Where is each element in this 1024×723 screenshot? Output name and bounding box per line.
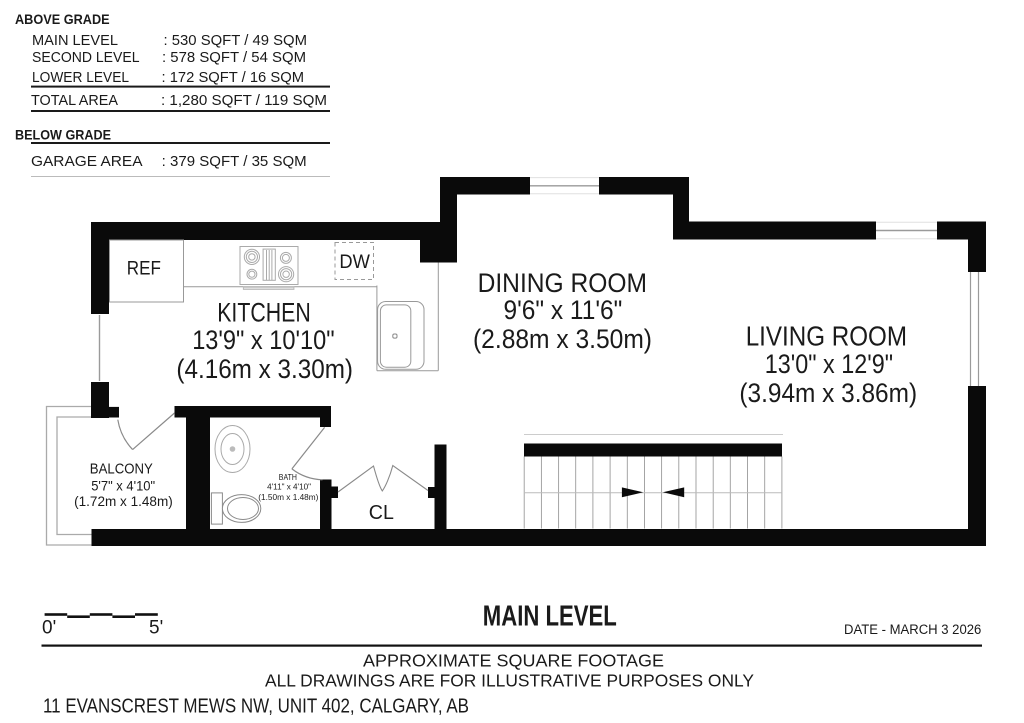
svg-text:DATE - MARCH 3 2026: DATE - MARCH 3 2026 bbox=[844, 622, 981, 637]
svg-text:13'9" x 10'10": 13'9" x 10'10" bbox=[192, 325, 334, 355]
svg-text:5'7" x 4'10": 5'7" x 4'10" bbox=[91, 479, 155, 494]
svg-text:(1.72m x 1.48m): (1.72m x 1.48m) bbox=[74, 494, 173, 509]
svg-text:CL: CL bbox=[369, 502, 394, 524]
svg-text:4'11" x 4'10": 4'11" x 4'10" bbox=[267, 483, 311, 492]
svg-text:KITCHEN: KITCHEN bbox=[217, 297, 311, 327]
svg-text:SECOND LEVEL: SECOND LEVEL bbox=[32, 50, 140, 66]
svg-text:ABOVE GRADE: ABOVE GRADE bbox=[15, 11, 110, 27]
svg-text:: 1,280 SQFT / 119 SQM: : 1,280 SQFT / 119 SQM bbox=[161, 93, 327, 109]
svg-text:BELOW GRADE: BELOW GRADE bbox=[15, 126, 111, 142]
svg-text:APPROXIMATE SQUARE FOOTAGE: APPROXIMATE SQUARE FOOTAGE bbox=[363, 651, 664, 671]
svg-text:9'6" x 11'6": 9'6" x 11'6" bbox=[504, 295, 623, 325]
svg-text:(1.50m x 1.48m): (1.50m x 1.48m) bbox=[258, 493, 318, 502]
svg-text:GARAGE AREA: GARAGE AREA bbox=[31, 154, 143, 170]
svg-text:0': 0' bbox=[42, 618, 56, 639]
svg-text:: 379 SQFT / 35 SQM: : 379 SQFT / 35 SQM bbox=[162, 154, 307, 170]
svg-text:MAIN LEVEL: MAIN LEVEL bbox=[32, 33, 118, 49]
svg-text:ALL DRAWINGS ARE FOR ILLUSTRAT: ALL DRAWINGS ARE FOR ILLUSTRATIVE PURPOS… bbox=[265, 671, 754, 691]
svg-text:(3.94m x 3.86m): (3.94m x 3.86m) bbox=[739, 378, 917, 408]
svg-text:BATH: BATH bbox=[279, 473, 297, 482]
svg-text:11 EVANSCREST MEWS NW, UNIT 40: 11 EVANSCREST MEWS NW, UNIT 402, CALGARY… bbox=[43, 696, 469, 718]
svg-text:TOTAL AREA: TOTAL AREA bbox=[31, 93, 118, 109]
svg-text:DINING ROOM: DINING ROOM bbox=[478, 268, 647, 298]
svg-text:: 172 SQFT / 16 SQM: : 172 SQFT / 16 SQM bbox=[162, 70, 305, 86]
svg-text:REF: REF bbox=[127, 258, 161, 279]
svg-text:MAIN LEVEL: MAIN LEVEL bbox=[483, 600, 617, 632]
svg-text:(4.16m x 3.30m): (4.16m x 3.30m) bbox=[176, 354, 353, 384]
svg-text:5': 5' bbox=[149, 618, 163, 639]
svg-text:: 578 SQFT / 54 SQM: : 578 SQFT / 54 SQM bbox=[162, 50, 306, 66]
svg-text:BALCONY: BALCONY bbox=[90, 461, 153, 477]
svg-text:DW: DW bbox=[339, 252, 370, 273]
svg-text:: 530 SQFT / 49 SQM: : 530 SQFT / 49 SQM bbox=[164, 33, 308, 49]
svg-text:LIVING ROOM: LIVING ROOM bbox=[746, 320, 907, 351]
svg-text:LOWER LEVEL: LOWER LEVEL bbox=[32, 70, 129, 86]
svg-text:(2.88m x 3.50m): (2.88m x 3.50m) bbox=[473, 324, 652, 354]
svg-text:13'0" x 12'9": 13'0" x 12'9" bbox=[765, 349, 893, 379]
